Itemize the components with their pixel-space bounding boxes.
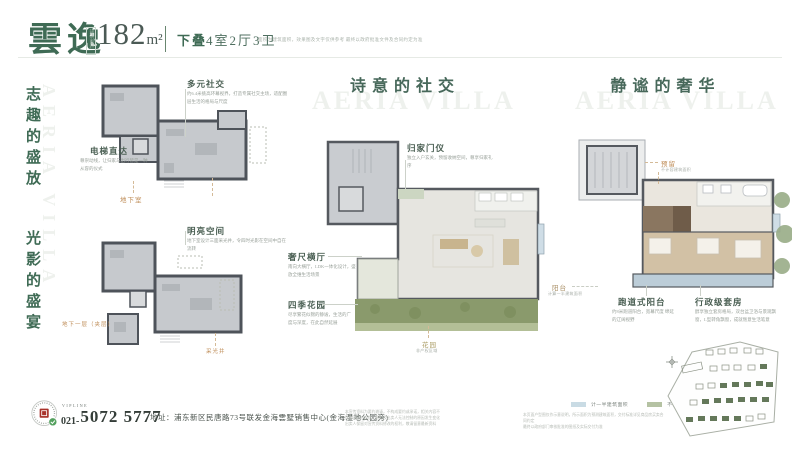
leader-line (212, 178, 213, 196)
leader-line (322, 304, 358, 305)
callout-runway-desc: 约8米跑道阳台，宽幕尺度 绵延的辽阔视野 (612, 308, 676, 323)
callout-bright-desc: 地下室设计三面采光井，令四时光影在空间中自在流转 (187, 237, 287, 252)
leader-line (428, 326, 429, 338)
leader-line (185, 89, 186, 137)
callout-garden4-title: 四季花园 (288, 299, 326, 311)
callout-hall-title: 奢尺横厅 (288, 251, 326, 263)
floorplan-second-floor (577, 138, 792, 288)
area-figure: 182m² (97, 16, 163, 52)
developer-seal-logo (31, 400, 59, 428)
legend-note-line2: 最终以政府部门审核批准的图纸及实际交付为准 (523, 424, 665, 430)
slogan-bottom: 光影的盛宴 (22, 230, 43, 350)
callout-elevator-desc: 尊崇动线，让归家与出行皆是一种从容的仪式 (80, 157, 150, 172)
callout-bright-title: 明亮空间 (187, 225, 225, 237)
header-disclaimer: 面积为建筑面积，效果图及文字仅供参考 最终以政府批准文件及合同约定为准 (258, 37, 423, 43)
brochure-page: 雲逸 建筑面积 182m² 下叠 4室2厅3卫 面积为建筑面积，效果图及文字仅供… (0, 0, 800, 449)
footer-fineprint: 本宣传资料为要约邀请，不构成要约或承诺，相关内容不排除因政府规划、规定及出卖人无… (345, 409, 441, 427)
callout-entry-title: 归家门仪 (407, 142, 445, 154)
legend-label-half-area: 计一半建筑面积 (591, 401, 628, 408)
fineprint-line1: 本宣传资料为要约邀请，不构成要约或承诺，相关内容不排除因政府规划、规定及出卖人无… (345, 409, 441, 421)
section-title-first-floor: 诗意的社交 (330, 72, 480, 96)
area-value: 182 (97, 16, 147, 51)
leader-line (572, 286, 598, 287)
leader-line (645, 162, 658, 163)
callout-hall-desc: 南向大横厅，LDK一体化设计，盛放全维生活场景 (288, 263, 356, 278)
balcony-note: 计算一半建筑面积 (548, 291, 582, 297)
site-plan (662, 340, 782, 440)
callout-social-desc: 约6.4米挑高环幕视界，打造专属社交主场，适配圈层生活的格局与尺度 (187, 90, 291, 105)
callout-social-title: 多元社交 (187, 78, 225, 90)
callout-suite-title: 行政级套房 (695, 296, 743, 308)
callout-entry-desc: 独立入户玄关，预留收纳空间，尊享归家礼序 (407, 154, 495, 169)
hotline: 021- 5072 5777 (61, 407, 162, 427)
leader-line (658, 172, 659, 184)
section-title-second-floor: 静谧的奢华 (588, 72, 743, 96)
area-unit: m² (147, 32, 163, 48)
legend-swatch-no-area (647, 402, 662, 407)
slogan-top: 志趣的盛放 (22, 86, 43, 206)
compass-icon (666, 356, 678, 368)
callout-suite-desc: 醇享独立套房格局，双台盆卫浴与景观飘窗，L型转角飘窗，成就惬意生活笔意 (695, 308, 783, 323)
garden-note: 非产权区域 (416, 348, 438, 354)
leader-line (405, 160, 406, 189)
leader-line (700, 285, 701, 296)
leader-line (215, 333, 216, 346)
leader-line (328, 256, 362, 257)
legend-swatch-half-area (571, 402, 586, 407)
header-divider (165, 26, 166, 52)
reserved-note: 不计容建筑面积 (661, 167, 691, 173)
leader-line (133, 181, 134, 193)
legend-note: 本页面户型图仅作示意说明，所示面积为预测建筑面积，交付标准详见商品房买卖合同约定… (523, 412, 665, 430)
callout-elevator-title: 电梯直达 (90, 145, 128, 157)
callout-garden4-desc: 尽享繁花似锦的静谧，生活的广度与深度，在此自然延展 (288, 311, 354, 326)
floor-label-mezzanine: 地下一层（夹层） (62, 320, 114, 328)
floor-label-basement: 地下室 (120, 194, 143, 204)
lightwell-label: 采光井 (206, 347, 226, 355)
legend-note-line1: 本页面户型图仅作示意说明，所示面积为预测建筑面积，交付标准详见商品房买卖合同约定 (523, 412, 665, 424)
header-rule (18, 57, 782, 58)
area-badge: 建筑面积 (86, 27, 96, 55)
callout-runway-title: 跑道式阳台 (618, 296, 666, 308)
leader-line (185, 231, 186, 245)
floorplan-mezzanine (100, 240, 260, 348)
leader-line (646, 285, 647, 296)
type-tag: 下叠 (177, 30, 207, 49)
fineprint-line2: 出卖人保留对宣传资料修改的权利，敬请留意最新资料 (345, 421, 441, 427)
phone-prefix: 021- (61, 416, 79, 427)
